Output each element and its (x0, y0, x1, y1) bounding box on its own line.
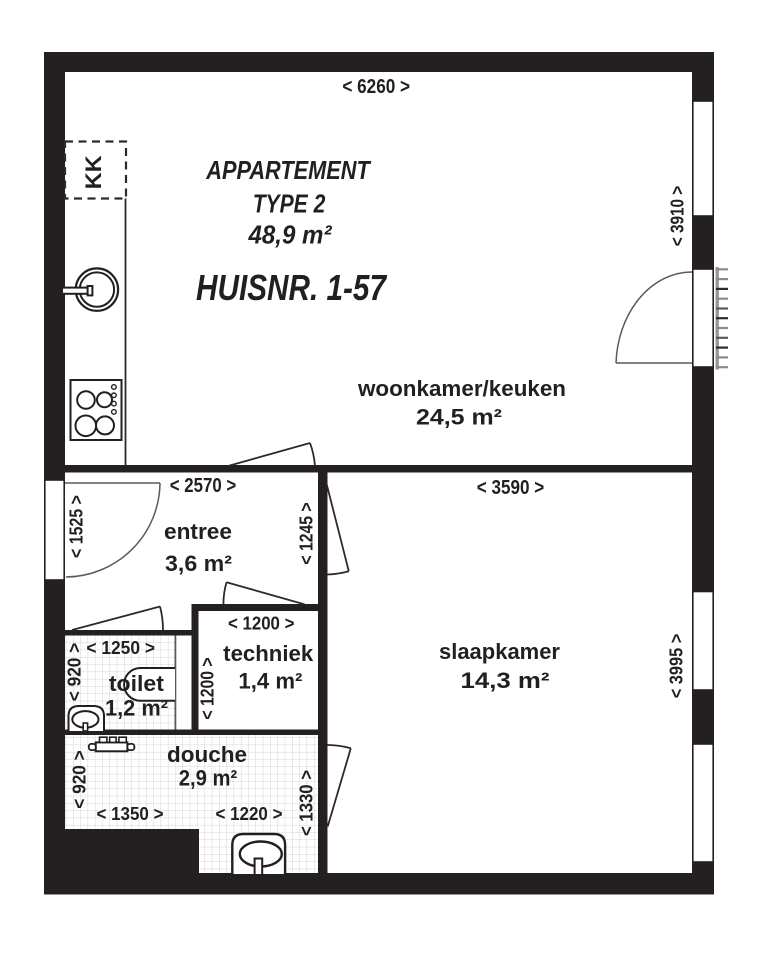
svg-text:2,9 m²: 2,9 m² (179, 766, 238, 791)
svg-text:< 1200 >: < 1200 > (228, 614, 294, 634)
svg-text:< 3590 >: < 3590 > (477, 477, 544, 499)
svg-text:< 1250 >: < 1250 > (86, 638, 155, 658)
svg-text:< 1245 >: < 1245 > (297, 502, 317, 564)
svg-text:douche: douche (167, 742, 247, 767)
svg-text:24,5 m²: 24,5 m² (416, 405, 502, 430)
svg-text:< 3995 >: < 3995 > (667, 634, 687, 699)
svg-text:< 6260 >: < 6260 > (342, 76, 410, 98)
svg-text:techniek: techniek (223, 641, 314, 666)
svg-text:< 3910 >: < 3910 > (667, 186, 687, 247)
svg-text:KK: KK (81, 155, 106, 189)
svg-text:< 920 >: < 920 > (70, 750, 90, 809)
svg-text:1,4 m²: 1,4 m² (238, 669, 302, 694)
svg-text:48,9 m²: 48,9 m² (248, 220, 333, 250)
svg-text:< 1525 >: < 1525 > (67, 495, 87, 558)
svg-text:woonkamer/keuken: woonkamer/keuken (357, 376, 566, 401)
svg-text:HUISNR. 1-57: HUISNR. 1-57 (196, 267, 388, 308)
svg-text:1,2 m²: 1,2 m² (105, 696, 168, 721)
svg-text:< 2570 >: < 2570 > (170, 475, 236, 497)
svg-text:entree: entree (164, 519, 232, 544)
svg-text:TYPE 2: TYPE 2 (253, 189, 326, 219)
svg-text:< 1350 >: < 1350 > (97, 804, 164, 824)
svg-text:3,6 m²: 3,6 m² (165, 551, 232, 576)
svg-text:APPARTEMENT: APPARTEMENT (205, 155, 371, 185)
svg-text:< 1200 >: < 1200 > (198, 657, 218, 719)
svg-text:14,3 m²: 14,3 m² (461, 668, 550, 693)
svg-text:< 920 >: < 920 > (64, 643, 84, 702)
svg-text:slaapkamer: slaapkamer (439, 639, 560, 664)
svg-text:< 1220 >: < 1220 > (216, 804, 283, 824)
svg-text:toilet: toilet (109, 671, 165, 696)
svg-text:< 1330 >: < 1330 > (297, 770, 317, 836)
